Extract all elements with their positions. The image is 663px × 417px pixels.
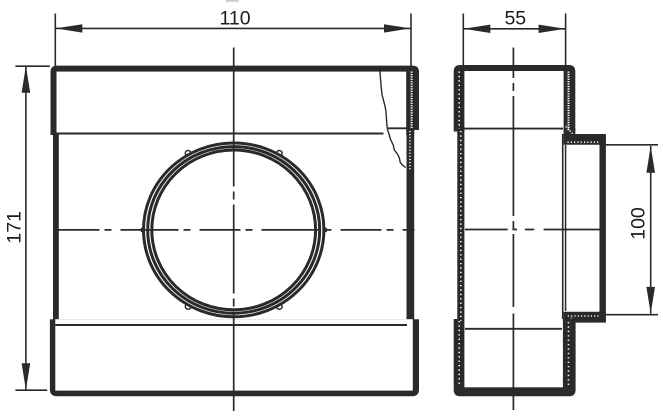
svg-text:110: 110: [219, 7, 250, 29]
svg-text:171: 171: [3, 211, 25, 244]
svg-text:100: 100: [628, 207, 650, 240]
svg-text:55: 55: [504, 8, 526, 30]
